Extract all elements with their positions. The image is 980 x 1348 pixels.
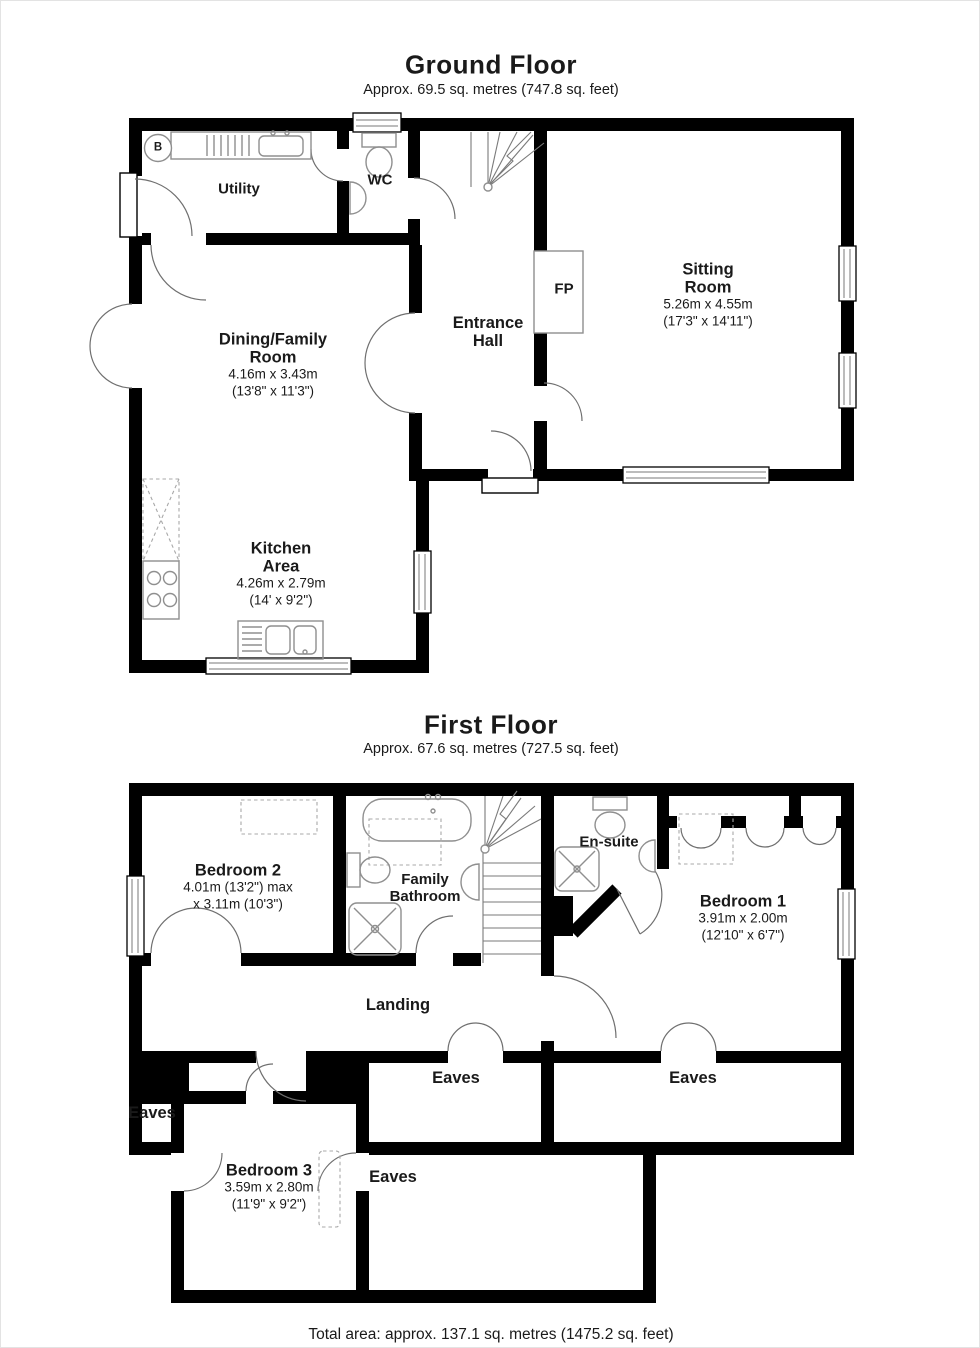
entrance-hall-label: Entrance Hall <box>453 314 524 350</box>
ensuite-label: En-suite <box>579 834 638 851</box>
sitting-room-bottom-window <box>623 467 769 483</box>
bathroom-door-arc <box>416 916 453 953</box>
wardrobe-door-arc-3b <box>820 828 837 845</box>
wardrobe-door-arc-1a <box>681 828 701 848</box>
eaves-right-door-arc-1 <box>661 1023 689 1051</box>
bathroom-toilet-cistern <box>347 853 360 887</box>
dining-hall-double-door-arc-1 <box>365 313 415 363</box>
utility-tap-2 <box>285 131 289 135</box>
bathroom-toilet-bowl <box>360 857 390 883</box>
first-floor-stairs <box>481 791 541 963</box>
floorplan-page: Ground Floor Approx. 69.5 sq. metres (74… <box>0 0 980 1348</box>
landing-label: Landing <box>366 996 430 1014</box>
landing-cupboard-arc-2 <box>476 1023 503 1051</box>
kitchen-drainer <box>242 627 262 651</box>
dining-room-label: Dining/Family Room 4.16m x 3.43m (13'8" … <box>219 331 327 400</box>
front-door-leaf <box>482 478 538 493</box>
ensuite-basin <box>639 840 655 872</box>
utility-external-door-arc <box>135 179 192 236</box>
wardrobe-door-arc-2b <box>765 828 784 847</box>
bedroom2-dashed-area <box>241 800 317 834</box>
bedroom1-door-arc <box>554 976 616 1038</box>
ground-floor-title: Ground Floor <box>405 50 577 81</box>
front-door-arc <box>491 431 531 471</box>
eaves-left-label: Eaves <box>128 1104 176 1122</box>
ground-floor-subtitle: Approx. 69.5 sq. metres (747.8 sq. feet) <box>363 82 619 98</box>
kitchen-hob <box>143 561 179 619</box>
bedroom3-left-door-arc <box>184 1153 222 1191</box>
dining-hall-double-door-arc-2 <box>365 363 415 413</box>
ensuite-door-leaf <box>617 889 640 934</box>
landing-cupboard-arc-1 <box>448 1023 476 1051</box>
utility-external-door-leaf <box>120 173 137 237</box>
french-door-arc-2 <box>90 346 132 388</box>
wc-basin <box>350 182 366 214</box>
kitchen-label: Kitchen Area 4.26m x 2.79m (14' x 9'2") <box>236 540 325 609</box>
kitchen-sink-tap <box>303 650 307 654</box>
bedroom3-right-door-arc <box>318 1153 356 1191</box>
eaves-right-label: Eaves <box>669 1069 717 1087</box>
bedroom3-dashed-area <box>319 1151 340 1227</box>
wardrobe-door-arc-1b <box>701 828 721 848</box>
eaves-bottom-label: Eaves <box>369 1168 417 1186</box>
sitting-room-label: Sitting Room 5.26m x 4.55m (17'3" x 14'1… <box>663 261 753 330</box>
bedroom2-label: Bedroom 2 4.01m (13'2") max x 3.11m (10'… <box>183 862 292 913</box>
utility-sink <box>259 136 303 156</box>
bedroom2-door-arc-2 <box>196 908 241 953</box>
utility-drainer <box>207 135 249 156</box>
family-bathroom-label: Family Bathroom <box>390 871 461 905</box>
ground-floor-stairs <box>471 132 544 191</box>
french-door-arc-1 <box>90 304 132 346</box>
ensuite-diagonal-wall <box>573 889 617 933</box>
sitting-room-window-lower <box>839 353 856 408</box>
ensuite-door-arc <box>640 863 662 934</box>
wc-toilet-cistern <box>362 133 396 147</box>
fireplace-label: FP <box>554 282 573 297</box>
bedroom2-door-arc-1 <box>151 908 196 953</box>
hall-sitting-door-arc <box>544 383 582 421</box>
first-floor-title: First Floor <box>424 710 558 741</box>
total-area-text: Total area: approx. 137.1 sq. metres (14… <box>308 1326 673 1344</box>
wc-window <box>353 113 401 132</box>
utility-tap-1 <box>271 131 275 135</box>
ensuite-toilet-cistern <box>593 797 627 810</box>
bathroom-basin <box>461 864 479 900</box>
kitchen-sink-bowl-1 <box>266 626 290 654</box>
wardrobe-door-arc-3a <box>803 828 820 845</box>
sitting-room-window-upper <box>839 246 856 301</box>
bedroom3-label: Bedroom 3 3.59m x 2.80m (11'9" x 9'2") <box>224 1162 313 1213</box>
bath-fixture <box>363 799 471 841</box>
first-floor-subtitle: Approx. 67.6 sq. metres (727.5 sq. feet) <box>363 741 619 757</box>
floorplan-drawing <box>1 1 980 1348</box>
bedroom2-window <box>127 876 144 956</box>
bedroom3-top-door-arc <box>246 1064 273 1091</box>
ground-floor-fixtures <box>143 131 583 659</box>
utility-wc-door-arc <box>311 149 343 181</box>
kitchen-side-window <box>414 551 431 613</box>
kitchen-bottom-window <box>206 658 351 674</box>
boiler-label: B <box>154 143 162 154</box>
utility-label: Utility <box>218 181 260 198</box>
wardrobe-door-arc-2a <box>746 828 765 847</box>
wc-label: WC <box>368 172 393 189</box>
eaves-center-label: Eaves <box>432 1069 480 1087</box>
bedroom1-window <box>838 889 855 959</box>
wc-hall-door-arc <box>414 178 455 219</box>
eaves-right-door-arc-2 <box>689 1023 716 1051</box>
utility-dining-door-arc <box>151 245 206 300</box>
bedroom1-label: Bedroom 1 3.91m x 2.00m (12'10" x 6'7") <box>698 893 787 944</box>
